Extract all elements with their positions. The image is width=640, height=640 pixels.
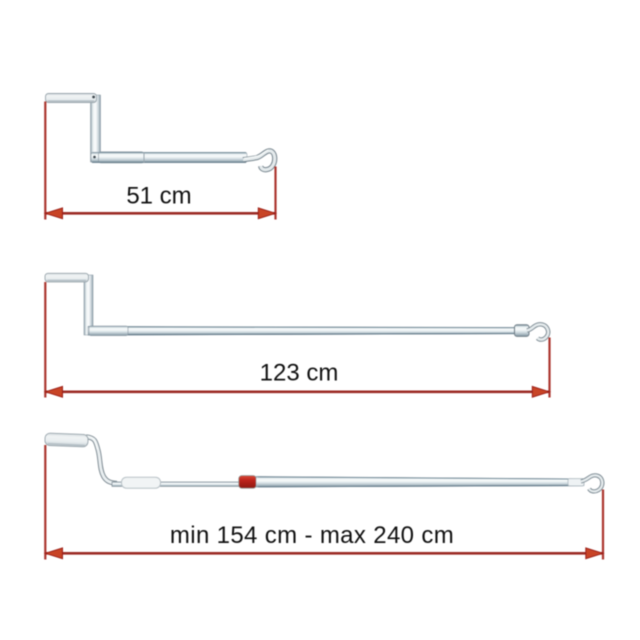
svg-text:123 cm: 123 cm: [260, 360, 339, 387]
svg-text:min 154 cm - max 240 cm: min 154 cm - max 240 cm: [170, 522, 454, 549]
svg-text:51 cm: 51 cm: [126, 183, 191, 210]
